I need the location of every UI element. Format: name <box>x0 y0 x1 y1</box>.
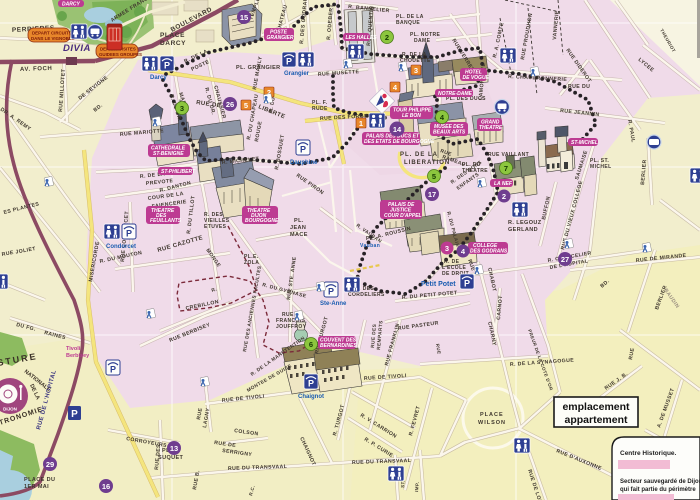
svg-text:qui fait partie du périmètre: qui fait partie du périmètre <box>620 487 696 493</box>
svg-text:LA NEF: LA NEF <box>494 181 513 187</box>
svg-text:Berbisey: Berbisey <box>66 353 90 359</box>
svg-text:PLACE: PLACE <box>160 32 185 39</box>
svg-text:GERLAND: GERLAND <box>508 227 538 233</box>
svg-text:MACE: MACE <box>290 232 308 238</box>
svg-text:LE BON: LE BON <box>402 113 421 119</box>
svg-text:PLACE DU: PLACE DU <box>24 477 55 483</box>
svg-text:SUQUET: SUQUET <box>158 455 184 461</box>
svg-text:PL. DE LA: PL. DE LA <box>400 152 438 158</box>
svg-text:14: 14 <box>393 125 402 134</box>
svg-text:FEUILLANTS: FEUILLANTS <box>150 218 182 224</box>
svg-text:RUDE: RUDE <box>312 106 328 112</box>
svg-text:3: 3 <box>414 66 418 75</box>
svg-text:5: 5 <box>244 101 248 110</box>
svg-text:29: 29 <box>46 460 54 469</box>
svg-text:Vauban: Vauban <box>360 243 380 249</box>
svg-text:NOTRE-DAME: NOTRE-DAME <box>438 91 473 97</box>
svg-text:P: P <box>71 409 78 420</box>
svg-text:Grangier: Grangier <box>284 71 310 77</box>
svg-text:BANQUE: BANQUE <box>396 20 420 26</box>
svg-text:RUE DU: RUE DU <box>568 84 590 90</box>
svg-text:7: 7 <box>504 164 508 173</box>
svg-text:16: 16 <box>102 482 110 491</box>
svg-text:MICHEL: MICHEL <box>590 164 612 170</box>
svg-text:1ER MAI: 1ER MAI <box>24 484 49 490</box>
svg-text:Darcy: Darcy <box>150 75 167 81</box>
svg-text:AV. FOCH: AV. FOCH <box>20 66 53 73</box>
svg-text:Dauphine: Dauphine <box>290 160 318 166</box>
svg-text:emplacement: emplacement <box>562 401 630 413</box>
svg-text:GRANGIER: GRANGIER <box>267 35 294 41</box>
svg-text:COUR D'APPEL: COUR D'APPEL <box>384 213 422 219</box>
svg-text:15: 15 <box>240 13 248 22</box>
svg-text:Petit Potet: Petit Potet <box>421 281 456 288</box>
svg-text:PL.: PL. <box>294 218 304 224</box>
svg-text:Centre Historique.: Centre Historique. <box>620 450 677 457</box>
svg-text:ST-PHILIBERT: ST-PHILIBERT <box>161 169 196 175</box>
svg-text:ETUVES: ETUVES <box>204 224 227 230</box>
svg-text:RUE VAILLANT: RUE VAILLANT <box>488 152 529 158</box>
svg-text:BERNARDINES: BERNARDINES <box>320 343 357 349</box>
svg-text:appartement: appartement <box>564 414 628 426</box>
svg-text:2: 2 <box>385 33 389 42</box>
svg-text:17: 17 <box>428 190 436 199</box>
svg-text:ST-BENIGNE: ST-BENIGNE <box>153 151 184 157</box>
svg-text:THEATRE: THEATRE <box>479 125 503 131</box>
svg-text:PLACE: PLACE <box>480 412 504 418</box>
svg-text:27: 27 <box>561 255 569 264</box>
svg-text:6: 6 <box>309 340 313 349</box>
svg-text:JOUFFROY: JOUFFROY <box>276 324 307 330</box>
svg-text:IMP.: IMP. <box>414 481 420 492</box>
svg-text:WILSON: WILSON <box>478 420 506 426</box>
svg-text:DES GODRANS: DES GODRANS <box>470 249 508 255</box>
svg-text:Ste-Anne: Ste-Anne <box>320 301 347 307</box>
svg-text:DANS LE VIGNOBLE: DANS LE VIGNOBLE <box>31 36 74 41</box>
svg-text:13: 13 <box>170 444 178 453</box>
svg-text:BEAUX ARTS: BEAUX ARTS <box>433 130 466 136</box>
svg-text:R. LEGOUZ: R. LEGOUZ <box>508 220 542 226</box>
svg-text:5: 5 <box>432 172 436 181</box>
svg-text:DEPART CIRCUITS: DEPART CIRCUITS <box>32 31 72 36</box>
svg-text:1: 1 <box>359 119 363 128</box>
svg-text:DAME: DAME <box>414 38 431 44</box>
svg-text:DES ETATS DE BOURGOGNE: DES ETATS DE BOURGOGNE <box>364 139 435 145</box>
svg-text:3: 3 <box>180 104 184 113</box>
svg-text:DARCY: DARCY <box>160 40 186 47</box>
svg-text:26: 26 <box>226 100 234 109</box>
svg-text:DE VOGUE: DE VOGUE <box>463 75 490 81</box>
svg-text:GUIDEES GROUPES: GUIDEES GROUPES <box>99 52 142 57</box>
svg-text:LES HALLES: LES HALLES <box>346 35 378 41</box>
svg-text:Secteur sauvegardé de Dijon: Secteur sauvegardé de Dijon <box>620 479 700 485</box>
svg-text:2: 2 <box>502 192 506 201</box>
svg-text:DIVIA: DIVIA <box>63 43 91 54</box>
svg-text:ZOLA: ZOLA <box>244 260 259 266</box>
svg-text:3: 3 <box>445 244 449 253</box>
svg-text:Chaignot: Chaignot <box>298 394 324 400</box>
svg-text:JEAN: JEAN <box>290 225 306 231</box>
svg-text:BOURGOGNE: BOURGOGNE <box>245 218 279 224</box>
svg-text:LIBERATION: LIBERATION <box>404 160 450 166</box>
svg-text:Condorcet: Condorcet <box>106 244 136 250</box>
svg-text:Tivoli: Tivoli <box>66 346 81 352</box>
svg-text:CORDELIERS: CORDELIERS <box>348 292 385 298</box>
svg-text:ST-MICHEL: ST-MICHEL <box>571 140 598 146</box>
svg-text:DIJON: DIJON <box>3 407 17 412</box>
svg-text:DARCY: DARCY <box>62 2 80 8</box>
